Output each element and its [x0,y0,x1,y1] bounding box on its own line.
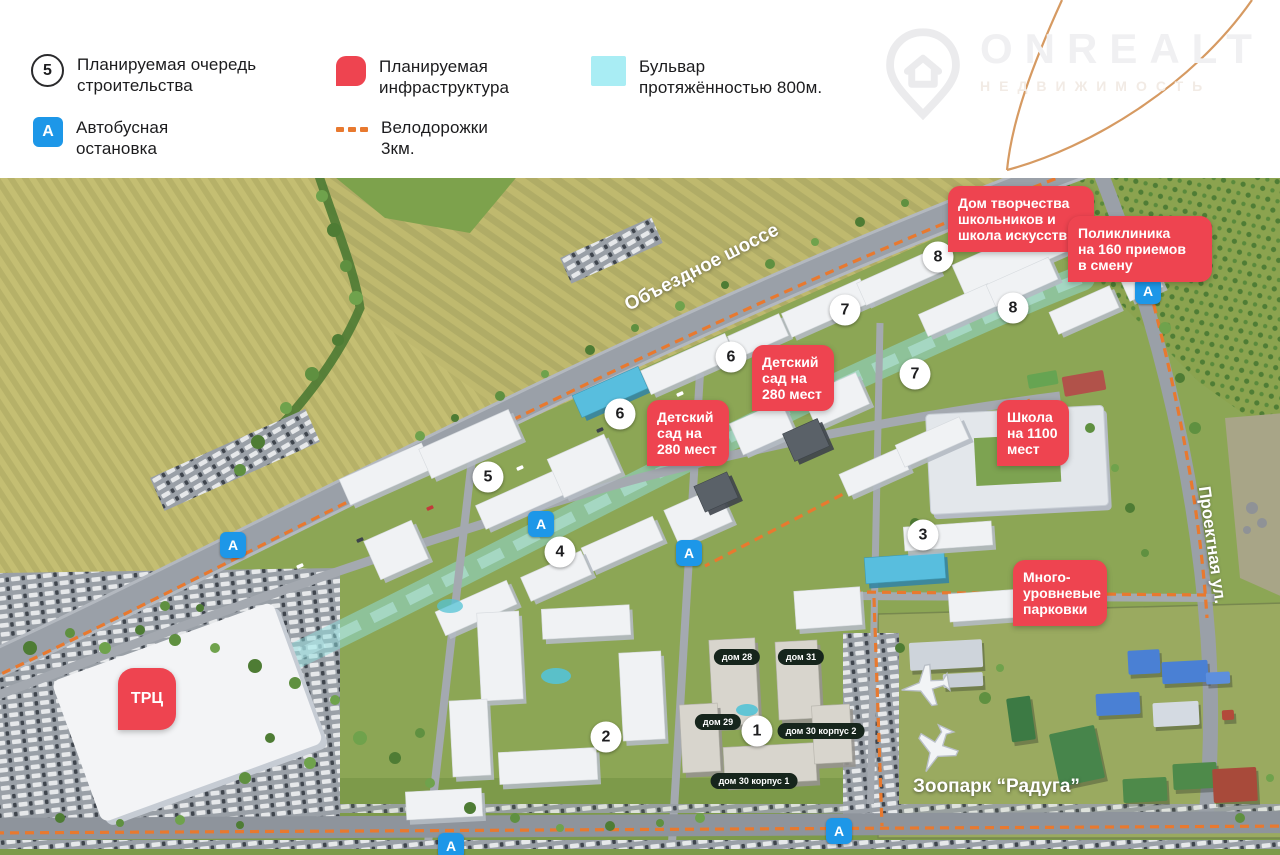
legend-item-bus: А Автобуснаяостановка [33,117,168,159]
legend-item-bike: Велодорожки3км. [336,117,488,159]
onrealt-logo: ONREALT НЕДВИЖИМОСТЬ [884,26,1264,120]
infrastructure-label: Детский сад на 280 мест [752,345,834,411]
infrastructure-label: ТРЦ [118,668,176,730]
phase-marker: 1 [742,716,773,747]
site-map: 12345667788ААААААДом творчества школьник… [0,178,1280,855]
boulevard-swatch-icon [591,56,626,86]
zoo-label: Зоопарк “Радуга” [913,776,1080,798]
house-badge: дом 29 [695,714,741,730]
legend-item-boulevard: Бульварпротяжённостью 800м. [591,56,822,98]
infrastructure-label: Много- уровневые парковки [1013,560,1107,626]
infrastructure-swatch-icon [336,56,366,86]
legend-label-phase: Планируемая очередьстроительства [77,54,256,96]
bus-stop-marker: А [528,511,554,537]
phase-marker: 6 [605,399,636,430]
house-pin-icon [884,26,962,120]
bus-stop-icon: А [33,117,63,147]
house-badge: дом 30 корпус 2 [778,723,865,739]
logo-subtitle-text: НЕДВИЖИМОСТЬ [980,78,1264,94]
house-badge: дом 30 корпус 1 [711,773,798,789]
phase-marker: 6 [716,342,747,373]
bus-stop-marker: А [220,532,246,558]
legend-label-bike: Велодорожки3км. [381,117,488,159]
bike-path-icon [336,127,368,132]
phase-marker: 3 [908,520,939,551]
phase-marker: 2 [591,722,622,753]
bus-stop-marker: А [826,818,852,844]
phase-number-icon: 5 [31,54,64,87]
legend-label-infrastructure: Планируемаяинфраструктура [379,56,509,98]
bus-stop-marker: А [676,540,702,566]
logo-texts: ONREALT НЕДВИЖИМОСТЬ [980,26,1264,94]
phase-marker: 4 [545,537,576,568]
phase-marker: 7 [900,359,931,390]
infrastructure-label: Школа на 1100 мест [997,400,1069,466]
legend-item-infrastructure: Планируемаяинфраструктура [336,56,509,98]
infrastructure-label: Детский сад на 280 мест [647,400,729,466]
infrastructure-label: Поликлиника на 160 приемов в смену [1068,216,1212,282]
phase-marker: 5 [473,462,504,493]
phase-marker: 8 [998,293,1029,324]
legend-label-boulevard: Бульварпротяжённостью 800м. [639,56,822,98]
legend-label-bus: Автобуснаяостановка [76,117,168,159]
phase-number: 5 [43,62,52,80]
house-badge: дом 31 [778,649,824,665]
logo-brand-text: ONREALT [980,26,1264,72]
phase-marker: 7 [830,295,861,326]
legend-panel: 5 Планируемая очередьстроительства Плани… [0,0,1280,178]
legend-item-phase: 5 Планируемая очередьстроительства [31,54,256,96]
bus-stop-marker: А [438,833,464,855]
screenshot-canvas: 5 Планируемая очередьстроительства Плани… [0,0,1280,855]
house-badge: дом 28 [714,649,760,665]
